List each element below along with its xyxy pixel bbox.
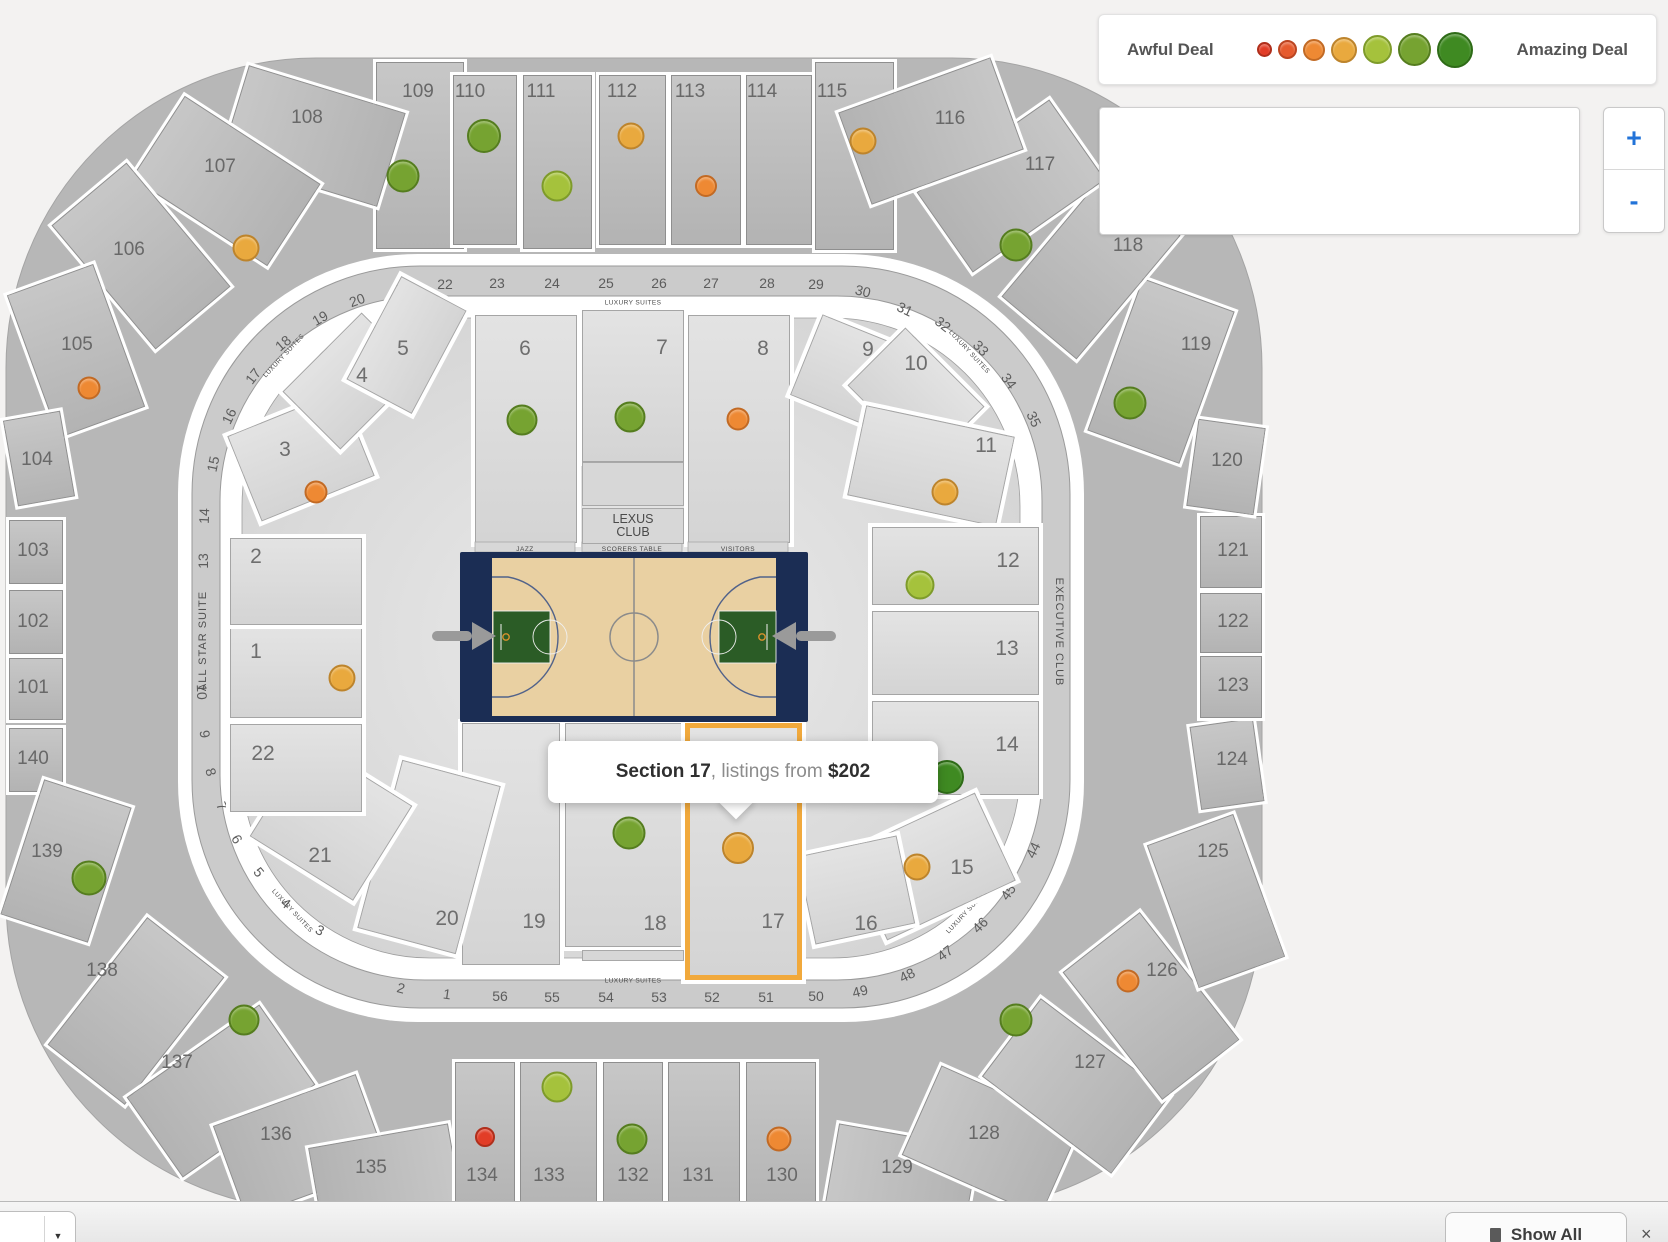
caret-down-icon: ▼ [54, 1231, 63, 1241]
deal-dot[interactable] [618, 123, 645, 150]
deal-dot[interactable] [722, 832, 754, 864]
deal-dot[interactable] [617, 1124, 648, 1155]
deal-dot[interactable] [542, 1072, 573, 1103]
deal-dot[interactable] [233, 235, 260, 262]
legend-dot-4 [1331, 37, 1357, 63]
deal-dot[interactable] [615, 402, 646, 433]
show-all-label: Show All [1511, 1225, 1582, 1242]
bottom-bar: ▼ Show All × [0, 1201, 1668, 1242]
deal-dot[interactable] [850, 128, 877, 155]
legend-dot-1 [1257, 42, 1272, 57]
deal-dot[interactable] [695, 175, 717, 197]
deal-dot[interactable] [1117, 970, 1140, 993]
legend-dot-2 [1278, 40, 1297, 59]
legend-dot-5 [1363, 35, 1392, 64]
deal-dot[interactable] [767, 1127, 792, 1152]
zoom-out-button[interactable]: - [1604, 170, 1664, 232]
deal-dot[interactable] [507, 405, 538, 436]
deal-dot[interactable] [305, 481, 328, 504]
deal-dot[interactable] [72, 861, 107, 896]
tooltip-section: Section 17 [616, 761, 711, 783]
deal-dot[interactable] [542, 171, 573, 202]
map-overview-box [1099, 107, 1580, 235]
deal-dot[interactable] [1000, 1004, 1033, 1037]
deal-dot[interactable] [467, 119, 501, 153]
bottom-dropdown[interactable]: ▼ [0, 1211, 76, 1242]
zoom-control: + - [1603, 107, 1665, 233]
deal-dot[interactable] [906, 571, 935, 600]
deal-dot[interactable] [1114, 387, 1147, 420]
deal-dot[interactable] [1000, 229, 1033, 262]
deal-dot[interactable] [613, 817, 646, 850]
legend-dots [1257, 32, 1473, 68]
show-all-button[interactable]: Show All [1445, 1212, 1627, 1242]
tooltip-middle: , listings from [711, 761, 828, 783]
deal-dot[interactable] [904, 854, 931, 881]
deal-dot[interactable] [229, 1005, 260, 1036]
legend-dot-7 [1437, 32, 1473, 68]
amazing-deal-label: Amazing Deal [1517, 40, 1628, 60]
deal-dot[interactable] [329, 665, 356, 692]
tooltip-price: $202 [828, 761, 870, 783]
deal-dot[interactable] [387, 160, 420, 193]
legend-dot-3 [1303, 39, 1325, 61]
deal-dot[interactable] [78, 377, 101, 400]
dropdown-divider [44, 1216, 45, 1242]
seat-map-page: 1091101111121131141151081071061051041031… [0, 0, 1668, 1242]
deal-dot[interactable] [932, 479, 959, 506]
awful-deal-label: Awful Deal [1127, 40, 1214, 60]
show-all-icon [1490, 1228, 1501, 1242]
close-icon[interactable]: × [1641, 1224, 1652, 1242]
deal-dot[interactable] [475, 1127, 495, 1147]
deal-quality-legend: Awful Deal Amazing Deal [1098, 14, 1657, 85]
tooltip: Section 17, listings from $202 [548, 741, 938, 803]
zoom-in-button[interactable]: + [1604, 108, 1664, 170]
deal-dot[interactable] [727, 408, 750, 431]
legend-dot-6 [1398, 33, 1431, 66]
